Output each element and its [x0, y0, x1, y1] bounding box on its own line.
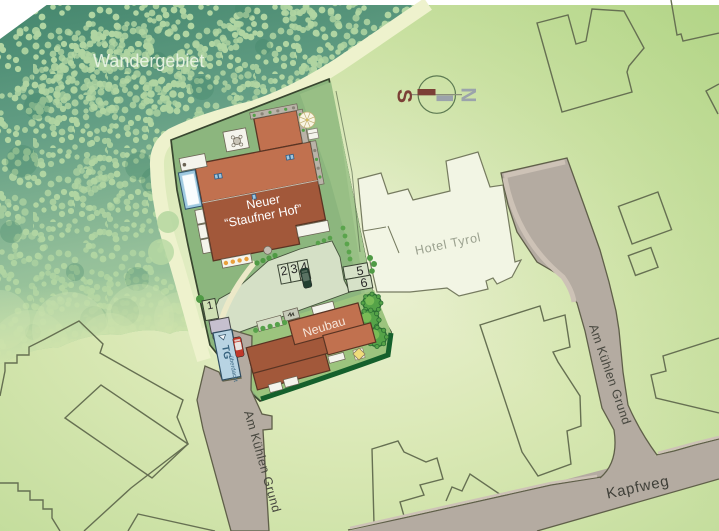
svg-text:N: N — [457, 87, 480, 102]
svg-text:Wandergebiet: Wandergebiet — [93, 51, 204, 71]
svg-text:S: S — [393, 89, 416, 103]
